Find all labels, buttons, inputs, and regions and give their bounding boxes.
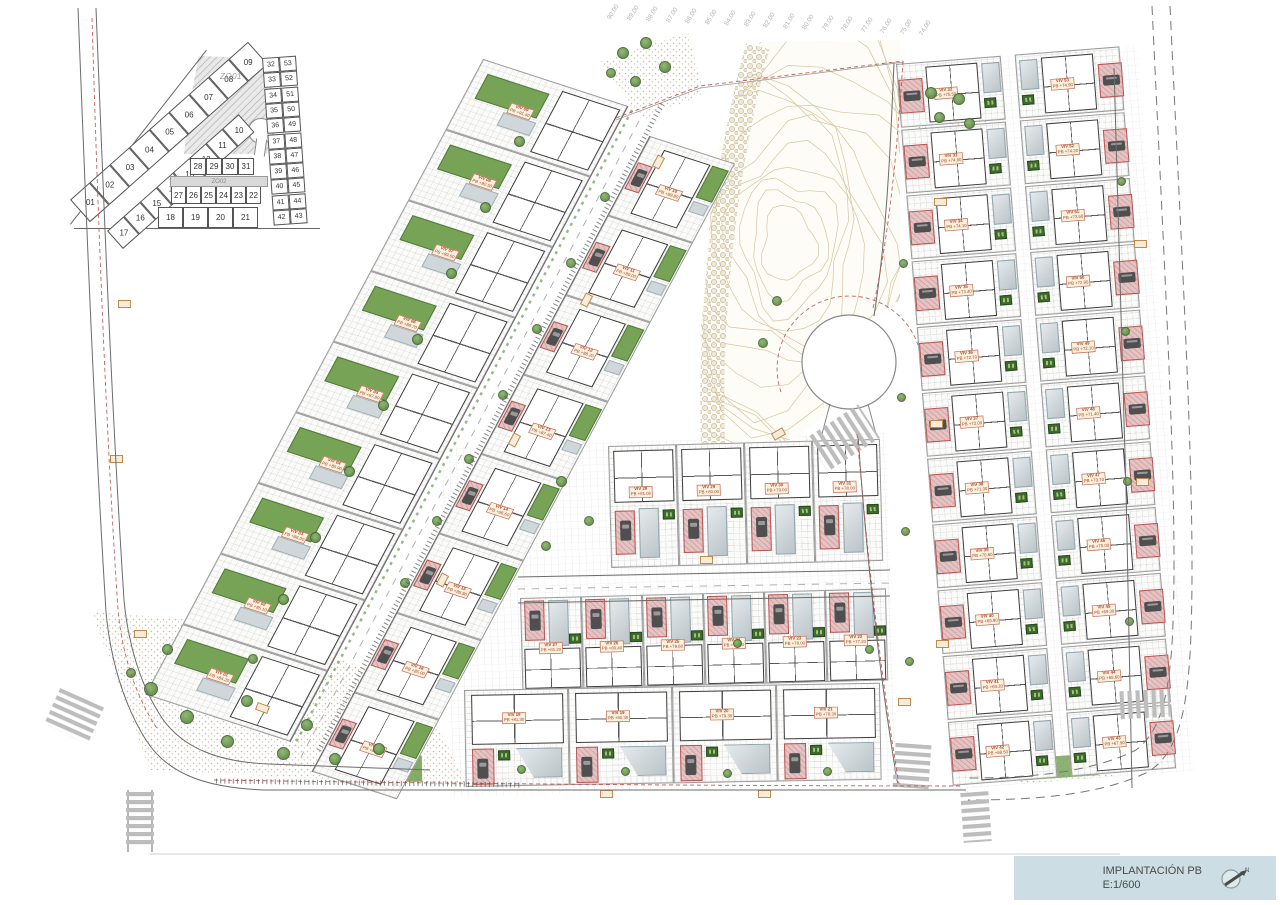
key-plan-plot: 26 bbox=[186, 186, 201, 204]
pool bbox=[997, 259, 1017, 290]
pool bbox=[1040, 322, 1060, 353]
key-plan-zone1-label: ZO01 bbox=[220, 72, 242, 81]
plot-number: 49 bbox=[288, 121, 296, 129]
center-bottom-row: VIV 18PB +81.30VIV 19PB +80.30VIV 20PB +… bbox=[464, 683, 882, 787]
villa-label: VIV 19PB +80.30 bbox=[606, 710, 630, 722]
garden-terrace bbox=[477, 598, 498, 614]
tree-icon bbox=[532, 324, 542, 334]
villa-level: PB +80.00 bbox=[699, 490, 719, 495]
tree-icon bbox=[899, 259, 908, 268]
driveway bbox=[898, 78, 925, 114]
plot-number: 39 bbox=[274, 168, 282, 176]
elevation-label: 86.00 bbox=[684, 7, 699, 25]
tree-icon bbox=[301, 719, 313, 731]
key-plan-plot: 53 bbox=[279, 56, 297, 72]
car-icon bbox=[685, 755, 696, 775]
key-plan-plot: 36 bbox=[266, 118, 284, 134]
villa-level: PB +80.40 bbox=[602, 646, 622, 651]
pool bbox=[1012, 457, 1032, 488]
zone-label: ZO02 bbox=[211, 179, 226, 185]
garden-terrace bbox=[434, 678, 455, 694]
driveway bbox=[950, 736, 977, 772]
villa-label: VIV 50PB +72.80 bbox=[1066, 275, 1091, 288]
pool bbox=[828, 742, 875, 773]
villa-level: PB +79.60 bbox=[663, 645, 683, 650]
driveway bbox=[1149, 720, 1176, 756]
driveway bbox=[1098, 62, 1125, 98]
plot-number: 25 bbox=[204, 191, 213, 200]
garden-gchip bbox=[731, 507, 743, 517]
driveway bbox=[707, 596, 728, 637]
pool bbox=[1017, 522, 1037, 553]
drawing-scale: E:1/600 bbox=[1103, 878, 1202, 892]
plot-number: 42 bbox=[278, 214, 286, 222]
title-text: IMPLANTACIÓN PB E:1/600 bbox=[1103, 864, 1202, 893]
driveway bbox=[1144, 654, 1171, 690]
villa-unit: VIV 51PB +73.50 bbox=[1025, 178, 1135, 250]
driveway bbox=[1113, 260, 1140, 296]
villa-label: VIV 30PB +79.00 bbox=[765, 482, 789, 494]
garden-gchip bbox=[1036, 755, 1049, 766]
drawing-title: IMPLANTACIÓN PB bbox=[1103, 864, 1202, 878]
elevation-label: 77.00 bbox=[860, 16, 875, 34]
car-icon bbox=[712, 606, 724, 626]
key-plan-plot: 23 bbox=[231, 186, 246, 204]
car-icon bbox=[934, 485, 952, 496]
tree-icon bbox=[1121, 327, 1130, 336]
villa-level: PB +74.20 bbox=[1058, 149, 1079, 156]
elevation-label: 75.00 bbox=[899, 18, 914, 36]
garden-gchip bbox=[1032, 226, 1045, 237]
car-icon bbox=[955, 748, 973, 759]
key-plan-plot: 31 bbox=[238, 158, 254, 175]
key-plan-plot: 32 bbox=[262, 57, 280, 73]
driveway bbox=[751, 507, 772, 552]
pool bbox=[609, 598, 630, 645]
pool bbox=[1035, 256, 1055, 287]
garden-gchip bbox=[1053, 489, 1066, 500]
driveway bbox=[935, 539, 962, 575]
villa-unit: VIV 32PB +75.50 bbox=[896, 56, 1006, 128]
car-icon bbox=[1103, 74, 1121, 85]
pool bbox=[981, 62, 1001, 93]
plot-number: 52 bbox=[285, 75, 293, 83]
elevation-label: 76.00 bbox=[879, 17, 894, 35]
garden-gchip bbox=[1031, 689, 1044, 700]
tree-icon bbox=[905, 657, 914, 666]
driveway bbox=[919, 341, 946, 377]
center-middle-row: VIV 27PB +81.20VIV 26PB +80.40VIV 25PB +… bbox=[520, 588, 888, 690]
car-icon bbox=[651, 607, 663, 627]
pool bbox=[1033, 720, 1053, 751]
key-plan-plot: 43 bbox=[290, 208, 308, 224]
garden-gchip bbox=[1074, 752, 1087, 763]
plot-number: 11 bbox=[218, 141, 226, 150]
villa-unit: VIV 31PB +78.00 bbox=[812, 439, 883, 563]
villa-level: PB +73.40 bbox=[951, 290, 972, 297]
villa-unit: VIV 52PB +74.20 bbox=[1020, 112, 1130, 184]
villa-label: VIV 43PB +67.90 bbox=[1102, 735, 1127, 748]
driveway bbox=[819, 505, 840, 550]
tree-icon bbox=[566, 258, 576, 268]
plot-number: 33 bbox=[268, 76, 276, 84]
plot-number: 23 bbox=[234, 191, 243, 200]
level-marker bbox=[930, 420, 943, 428]
villa-label: VIV 33PB +74.80 bbox=[939, 152, 964, 165]
garden-gchip bbox=[1022, 94, 1035, 105]
villa-level: PB +77.20 bbox=[846, 640, 866, 645]
plot-number: 29 bbox=[210, 162, 219, 171]
elevation-label: 78.00 bbox=[840, 15, 855, 33]
villa-unit: VIV 27PB +81.20 bbox=[520, 596, 583, 690]
tree-icon bbox=[901, 527, 910, 536]
villa-unit: VIV 22PB +77.20 bbox=[825, 588, 888, 682]
key-plan-plot: 38 bbox=[268, 148, 286, 164]
plot-number: 03 bbox=[125, 163, 134, 172]
plot-number: 44 bbox=[293, 197, 301, 205]
tree-icon bbox=[758, 338, 768, 348]
plot-number: 46 bbox=[291, 167, 299, 175]
site-plan-sheet: 0102030405060708091716151413121110282930… bbox=[0, 0, 1280, 905]
car-icon bbox=[945, 617, 963, 628]
garden-terrace bbox=[688, 201, 709, 217]
key-plan-plot: 52 bbox=[280, 71, 298, 87]
car-icon bbox=[688, 519, 700, 539]
villa-label: VIV 41PB +69.20 bbox=[980, 679, 1005, 692]
villa-unit: VIV 41PB +69.20 bbox=[943, 648, 1053, 720]
tree-icon bbox=[400, 578, 410, 588]
car-icon bbox=[950, 682, 968, 693]
garden-gchip bbox=[1020, 558, 1033, 569]
villa-unit: VIV 26PB +80.40 bbox=[581, 595, 644, 689]
garden-gchip bbox=[874, 625, 886, 635]
villa-level: PB +79.00 bbox=[767, 488, 787, 493]
driveway bbox=[585, 599, 606, 640]
plot-number: 04 bbox=[145, 145, 154, 154]
driveway bbox=[615, 510, 636, 555]
pool bbox=[1028, 654, 1048, 685]
villa-unit: VIV 24PB +78.80 bbox=[703, 592, 766, 686]
tree-icon bbox=[277, 747, 290, 760]
car-icon bbox=[590, 609, 602, 629]
key-plan-plot: 33 bbox=[263, 72, 281, 88]
garden-gchip bbox=[1015, 492, 1028, 503]
elevation-label: 81.00 bbox=[782, 12, 797, 30]
villa-unit: VIV 29PB +80.00 bbox=[676, 442, 747, 566]
driveway bbox=[945, 670, 972, 706]
tree-icon bbox=[310, 532, 321, 543]
villa-unit: VIV 44PB +68.60 bbox=[1061, 639, 1171, 711]
villa-label: VIV 25PB +79.60 bbox=[661, 639, 685, 651]
garden-gchip bbox=[1010, 426, 1023, 437]
key-plan-zone2-band: ZO02 bbox=[170, 176, 268, 187]
villa-label: VIV 31PB +78.00 bbox=[833, 481, 857, 493]
garden-terrace bbox=[646, 280, 667, 296]
pool bbox=[1050, 454, 1070, 485]
driveway bbox=[940, 604, 967, 640]
villa-level: PB +72.80 bbox=[1068, 280, 1089, 287]
pool bbox=[1055, 519, 1075, 550]
villa-label: VIV 47PB +70.70 bbox=[1081, 472, 1106, 485]
car-icon bbox=[581, 757, 592, 777]
tree-icon bbox=[480, 202, 491, 213]
villa-level: PB +81.00 bbox=[631, 492, 651, 497]
plot-number: 02 bbox=[105, 180, 114, 189]
plot-number: 53 bbox=[284, 60, 292, 68]
key-plan-plot: 34 bbox=[264, 87, 282, 103]
driveway bbox=[683, 509, 704, 554]
plot-number: 31 bbox=[242, 162, 251, 171]
plot-number: 09 bbox=[244, 57, 253, 66]
tree-icon bbox=[432, 516, 442, 526]
tree-icon bbox=[964, 118, 975, 129]
garden-gchip bbox=[498, 750, 510, 760]
tree-icon bbox=[723, 769, 732, 778]
villa-label: VIV 53PB +74.90 bbox=[1050, 77, 1075, 90]
villa-label: VIV 22PB +77.20 bbox=[844, 634, 868, 646]
pool bbox=[853, 592, 874, 639]
tree-icon bbox=[498, 390, 508, 400]
villa-level: PB +72.10 bbox=[1073, 346, 1094, 353]
level-marker bbox=[936, 640, 949, 648]
key-plan-plot: 20 bbox=[208, 207, 233, 228]
key-plan-plot: 18 bbox=[158, 207, 183, 228]
elevation-label: 79.00 bbox=[821, 14, 836, 32]
villa-level: PB +81.20 bbox=[541, 648, 561, 653]
pool bbox=[1045, 388, 1065, 419]
villa-level: PB +74.10 bbox=[946, 224, 967, 231]
key-plan-plot: 25 bbox=[201, 186, 216, 204]
villa-label: VIV 45PB +69.30 bbox=[1092, 604, 1117, 617]
garden-gchip bbox=[810, 745, 822, 755]
plot-number: 07 bbox=[204, 92, 213, 101]
garden-gchip bbox=[1027, 160, 1040, 171]
key-plan-plot: 30 bbox=[222, 158, 238, 175]
key-plan-plot: 24 bbox=[216, 186, 231, 204]
key-plan-plot: 51 bbox=[281, 86, 299, 102]
villa-label: VIV 39PB +70.60 bbox=[970, 547, 995, 560]
tree-icon bbox=[630, 76, 641, 87]
driveway bbox=[1129, 457, 1156, 493]
tree-icon bbox=[344, 466, 355, 477]
plot-number: 40 bbox=[275, 183, 283, 191]
pool bbox=[992, 193, 1012, 224]
plot-number: 36 bbox=[271, 122, 279, 130]
plot-number: 28 bbox=[194, 162, 203, 171]
car-icon bbox=[903, 90, 921, 101]
key-plan-plot: 22 bbox=[246, 186, 261, 204]
driveway bbox=[1103, 128, 1130, 164]
tree-icon bbox=[144, 682, 158, 696]
garden-terrace bbox=[392, 757, 413, 773]
garden-gchip bbox=[1025, 624, 1038, 635]
villa-level: PB +71.40 bbox=[1078, 412, 1099, 419]
tree-icon bbox=[606, 68, 616, 78]
pool bbox=[1023, 588, 1043, 619]
tree-icon bbox=[600, 192, 610, 202]
tree-icon bbox=[823, 767, 832, 776]
tree-icon bbox=[180, 710, 194, 724]
villa-label: VIV 18PB +81.30 bbox=[502, 712, 526, 724]
plot-number: 38 bbox=[273, 153, 281, 161]
plot-number: 32 bbox=[267, 61, 275, 69]
elevation-label: 80.00 bbox=[801, 13, 816, 31]
tree-icon bbox=[162, 644, 173, 655]
villa-unit: VIV 48PB +71.40 bbox=[1041, 375, 1151, 447]
plot-number: 17 bbox=[119, 228, 128, 237]
plot-number: 27 bbox=[174, 191, 183, 200]
villa-level: PB +81.30 bbox=[504, 718, 524, 723]
pool bbox=[707, 506, 728, 557]
garden-gchip bbox=[813, 627, 825, 637]
villa-label: VIV 20PB +79.30 bbox=[710, 709, 734, 721]
villa-label: VIV 35PB +73.40 bbox=[949, 284, 974, 297]
garden-gchip bbox=[1068, 686, 1081, 697]
garden-terrace bbox=[561, 439, 582, 455]
car-icon bbox=[939, 551, 957, 562]
garden-terrace bbox=[519, 519, 540, 535]
garden-gchip bbox=[1048, 423, 1061, 434]
key-plan-plot: 21 bbox=[233, 207, 258, 228]
key-plan-plot: 44 bbox=[289, 193, 307, 209]
tree-icon bbox=[1123, 477, 1132, 486]
garden-gchip bbox=[989, 163, 1002, 174]
car-icon bbox=[789, 753, 800, 773]
driveway bbox=[1108, 194, 1135, 230]
level-marker bbox=[898, 698, 911, 706]
garden-gchip bbox=[1058, 555, 1071, 566]
villa-label: VIV 34PB +74.10 bbox=[944, 218, 969, 231]
pool bbox=[1007, 391, 1027, 422]
villa-unit: VIV 43PB +67.90 bbox=[1066, 704, 1176, 776]
car-icon bbox=[1108, 140, 1126, 151]
villa-level: PB +68.60 bbox=[1099, 675, 1120, 682]
plot-number: 43 bbox=[294, 213, 302, 221]
villa-unit: VIV 53PB +74.90 bbox=[1015, 46, 1125, 118]
driveway bbox=[929, 473, 956, 509]
garden-gchip bbox=[867, 504, 879, 514]
villa-level: PB +68.50 bbox=[988, 750, 1009, 757]
plot-number: 30 bbox=[226, 162, 235, 171]
level-marker bbox=[600, 790, 613, 798]
level-marker bbox=[934, 198, 947, 206]
driveway bbox=[784, 743, 807, 779]
car-icon bbox=[914, 222, 932, 233]
villa-level: PB +71.30 bbox=[967, 487, 988, 494]
driveway bbox=[1134, 523, 1161, 559]
villa-unit: VIV 34PB +74.10 bbox=[906, 187, 1016, 259]
villa-label: VIV 23PB +78.00 bbox=[783, 636, 807, 648]
plot-number: 10 bbox=[234, 126, 243, 135]
tree-icon bbox=[126, 668, 136, 678]
tree-icon bbox=[640, 37, 652, 49]
driveway bbox=[914, 275, 941, 311]
car-icon bbox=[1149, 667, 1167, 678]
pool bbox=[1024, 125, 1044, 156]
car-icon bbox=[1113, 206, 1131, 217]
villa-unit: VIV 49PB +72.10 bbox=[1035, 310, 1145, 382]
villa-label: VIV 26PB +80.40 bbox=[600, 641, 624, 653]
villa-label: VIV 44PB +68.60 bbox=[1097, 669, 1122, 682]
level-marker bbox=[771, 427, 786, 440]
tree-icon bbox=[897, 393, 906, 402]
plot-number: 37 bbox=[272, 137, 280, 145]
plot-number: 20 bbox=[216, 213, 225, 222]
villa-level: PB +70.70 bbox=[1084, 478, 1105, 485]
garden-gchip bbox=[984, 97, 997, 108]
tree-icon bbox=[953, 93, 965, 105]
key-plan-plot: 46 bbox=[286, 162, 304, 178]
car-icon bbox=[1123, 338, 1141, 349]
key-plan-plot: 29 bbox=[206, 158, 222, 175]
driveway bbox=[768, 594, 789, 635]
villa-unit: VIV 50PB +72.80 bbox=[1030, 244, 1140, 316]
villa-level: PB +69.30 bbox=[1094, 609, 1115, 616]
key-plan-plot: 48 bbox=[284, 132, 302, 148]
tree-icon bbox=[241, 695, 253, 707]
elevation-label: 85.00 bbox=[704, 8, 719, 26]
plot-number: 22 bbox=[249, 191, 258, 200]
driveway bbox=[829, 592, 850, 633]
plan-content-layer: 0102030405060708091716151413121110282930… bbox=[0, 0, 1280, 905]
pool bbox=[548, 600, 569, 647]
pool bbox=[1061, 585, 1081, 616]
key-plan-plot: 39 bbox=[269, 164, 287, 180]
tree-icon bbox=[659, 61, 671, 73]
villa-unit: VIV 42PB +68.50 bbox=[948, 714, 1058, 786]
level-marker bbox=[134, 630, 147, 638]
tree-icon bbox=[329, 753, 341, 765]
car-icon bbox=[529, 610, 541, 630]
villa-unit: VIV 36PB +72.70 bbox=[917, 319, 1027, 391]
plot-number: 16 bbox=[135, 214, 144, 223]
villa-unit: VIV 33PB +74.80 bbox=[901, 122, 1011, 194]
villa-level: PB +74.90 bbox=[1053, 83, 1074, 90]
pool bbox=[1019, 59, 1039, 90]
villa-level: PB +69.20 bbox=[983, 684, 1004, 691]
villa-level: PB +69.90 bbox=[977, 619, 998, 626]
tree-icon bbox=[378, 400, 389, 411]
garden-gchip bbox=[999, 295, 1012, 306]
villa-label: VIV 46PB +70.00 bbox=[1087, 538, 1112, 551]
pool bbox=[1002, 325, 1022, 356]
plot-number: 06 bbox=[184, 110, 193, 119]
pool bbox=[639, 508, 660, 559]
villa-label: VIV 38PB +71.30 bbox=[965, 481, 990, 494]
tree-icon bbox=[617, 47, 629, 59]
center-upper-row: VIV 28PB +81.00VIV 29PB +80.00VIV 30PB +… bbox=[608, 439, 883, 568]
garden-gchip bbox=[1043, 357, 1056, 368]
car-icon bbox=[477, 759, 488, 779]
villa-level: PB +79.30 bbox=[712, 714, 732, 719]
villa-level: PB +72.00 bbox=[962, 421, 983, 428]
car-icon bbox=[924, 353, 942, 364]
tree-icon bbox=[925, 87, 937, 99]
elevation-label: 88.00 bbox=[645, 5, 660, 23]
elevation-label: 90.00 bbox=[606, 3, 621, 21]
tree-icon bbox=[1125, 617, 1134, 626]
villa-unit: VIV 35PB +73.40 bbox=[912, 253, 1022, 325]
garden-gchip bbox=[752, 629, 764, 639]
garden-gchip bbox=[799, 506, 811, 516]
garden-gchip bbox=[1005, 360, 1018, 371]
villa-unit: VIV 25PB +79.60 bbox=[642, 593, 705, 687]
car-icon bbox=[919, 288, 937, 299]
car-icon bbox=[1128, 403, 1146, 414]
garden-gchip bbox=[1063, 621, 1076, 632]
garden-gchip bbox=[663, 509, 675, 519]
tree-icon bbox=[514, 136, 525, 147]
